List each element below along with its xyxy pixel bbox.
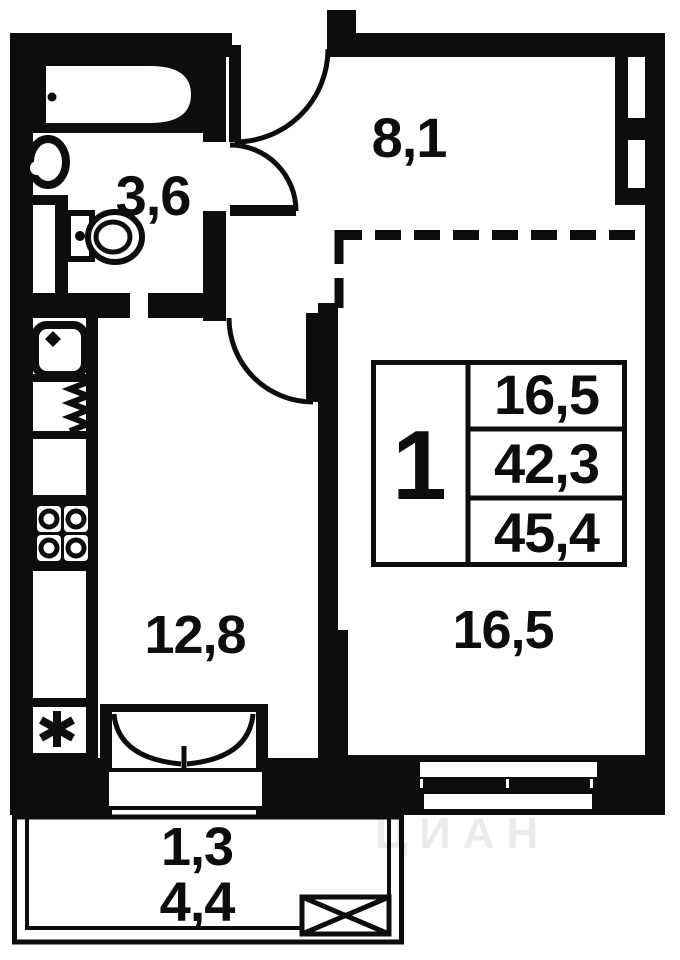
wall-bathroom-right-lower (203, 211, 226, 321)
bathroom-door-leaf (230, 205, 296, 216)
stove-icon (33, 502, 90, 564)
room-label-balcony-reduced: 1,3 (137, 820, 257, 874)
table-total-area: 45,4 (468, 505, 625, 561)
room-label-living-room: 16,5 (433, 603, 573, 657)
wall-top-right (327, 33, 665, 57)
floorplan-canvas: 3,6 8,1 12,8 16,5 1,3 4,4 1 16,5 42,3 45… (0, 0, 680, 960)
balcony-door-header (100, 704, 268, 712)
balcony-door-arcs (114, 714, 253, 770)
wall-right (645, 33, 665, 815)
wall-pilaster (338, 630, 348, 760)
wall-kitchen-living (318, 303, 338, 760)
wall-bathroom-right-upper (203, 50, 226, 142)
table-living-area: 16,5 (468, 367, 625, 423)
kitchen-sink-icon (35, 325, 85, 375)
washbasin-icon (30, 139, 66, 185)
entrance-door-leaf (229, 45, 241, 142)
wall-bottom-kitchen-left (10, 758, 102, 815)
room-label-balcony: 4,4 (137, 874, 257, 930)
asterisk-icon (41, 711, 73, 747)
bathroom-door-arc (230, 145, 296, 211)
dish-rack-icon (70, 382, 88, 431)
vent-shaft (615, 57, 647, 205)
bathtub-icon (33, 50, 205, 133)
kitchen-door-arc (229, 318, 313, 402)
watermark: ЦИАН (375, 812, 635, 856)
entrance-door-arc (235, 49, 328, 142)
balcony-hatch-icon (302, 897, 389, 934)
kitchen-door-leaf (306, 313, 320, 402)
room-label-bathroom: 3,6 (93, 168, 213, 224)
wall-bottom-kitchen-right (266, 758, 338, 815)
duct-niche-top (33, 195, 57, 205)
room-label-hallway: 8,1 (349, 110, 469, 166)
dashed-partition (336, 230, 648, 308)
table-rooms-count: 1 (373, 416, 466, 514)
table-area-without-balcony: 42,3 (468, 436, 625, 492)
wall-bathroom-bottom (33, 293, 130, 318)
wall-hall-kitchen-left (148, 293, 206, 318)
balcony-door-threshold (107, 770, 264, 808)
room-label-kitchen: 12,8 (125, 608, 265, 662)
